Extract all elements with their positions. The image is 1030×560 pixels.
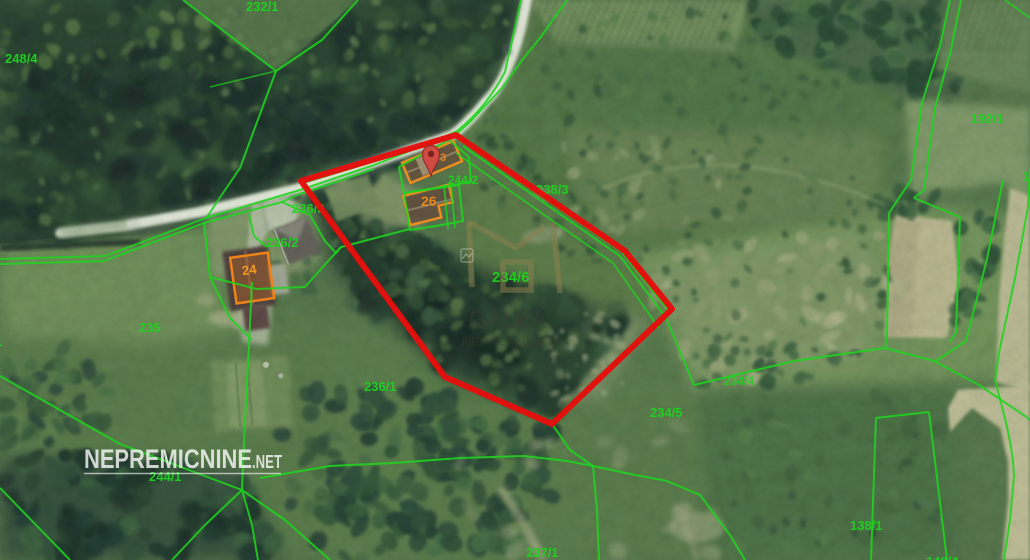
svg-text:26: 26 xyxy=(421,193,437,209)
svg-text:248/4: 248/4 xyxy=(5,51,38,66)
svg-text:192/3: 192/3 xyxy=(1022,169,1030,184)
svg-text:140/4: 140/4 xyxy=(926,554,959,560)
svg-text:24: 24 xyxy=(241,261,258,278)
svg-text:237/1: 237/1 xyxy=(526,545,559,560)
svg-text:3: 3 xyxy=(440,152,446,164)
svg-text:234/4: 234/4 xyxy=(724,374,754,388)
svg-text:235: 235 xyxy=(139,320,161,335)
svg-text:NEPREMIČNINE: NEPREMIČNINE xyxy=(462,334,562,349)
svg-text:232/1: 232/1 xyxy=(246,0,279,14)
svg-text:236/2: 236/2 xyxy=(266,235,299,250)
svg-text:192/1: 192/1 xyxy=(971,111,1004,126)
svg-text:236/1: 236/1 xyxy=(364,379,397,394)
svg-text:234/5: 234/5 xyxy=(650,405,683,420)
svg-text:234/6: 234/6 xyxy=(492,269,530,286)
svg-text:247/1: 247/1 xyxy=(0,334,3,349)
svg-text:244/2: 244/2 xyxy=(448,173,478,187)
svg-text:138/1: 138/1 xyxy=(850,518,883,533)
svg-text:GALEA: GALEA xyxy=(469,304,547,334)
